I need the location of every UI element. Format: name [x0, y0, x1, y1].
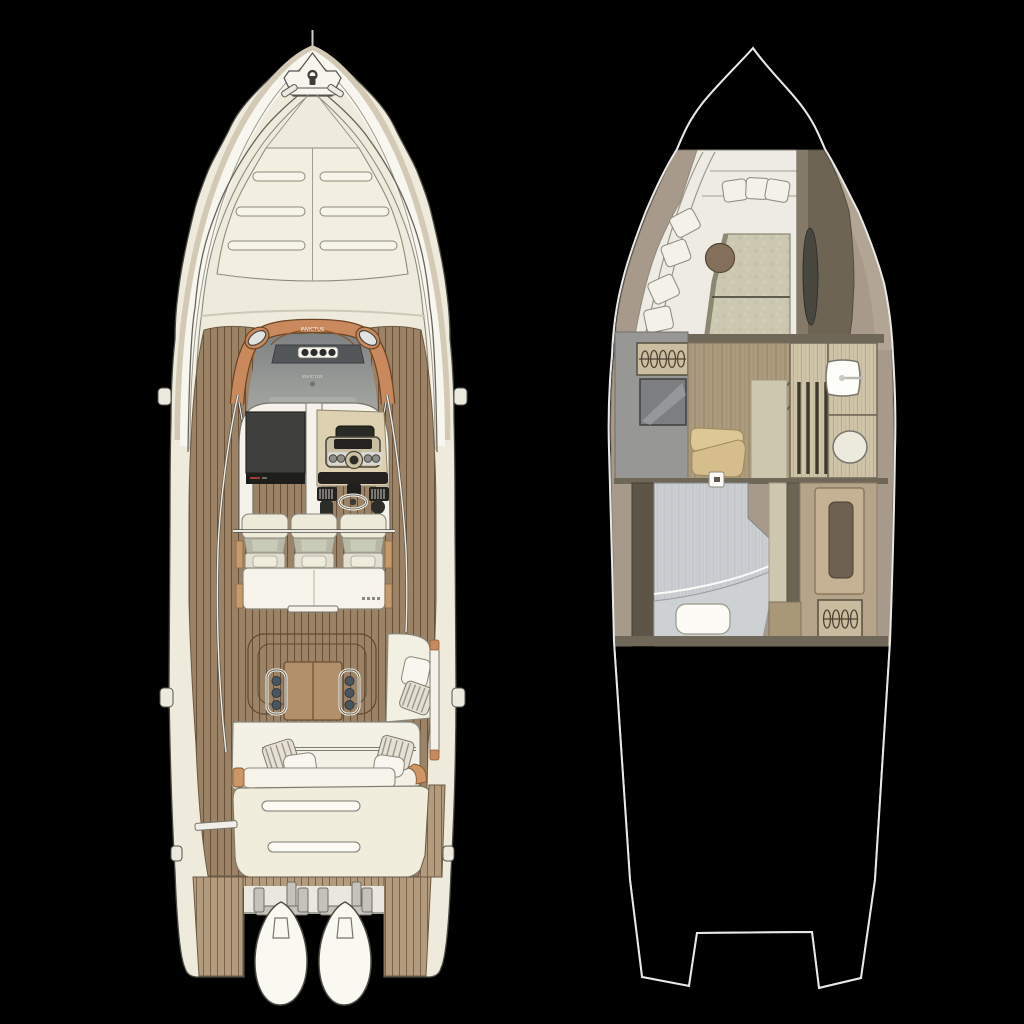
- svg-text:INVICTUS: INVICTUS: [301, 327, 325, 333]
- svg-text:INVICTUS: INVICTUS: [302, 374, 323, 379]
